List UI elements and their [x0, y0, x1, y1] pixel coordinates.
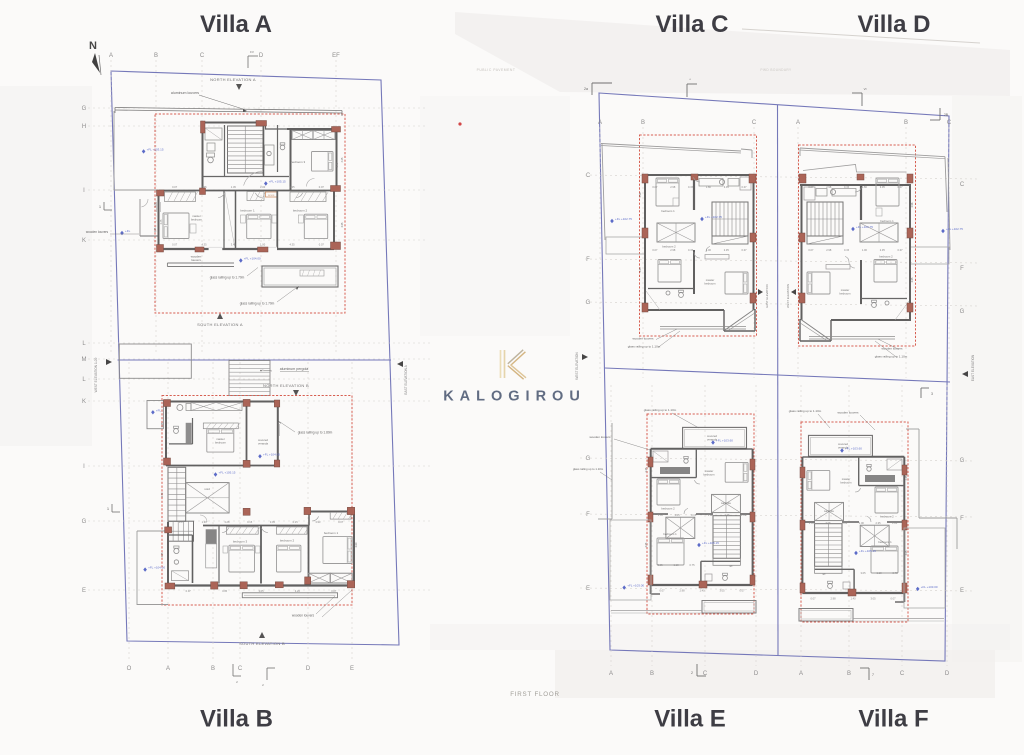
svg-text:4.25: 4.25 [341, 157, 344, 162]
svg-text:2.35: 2.35 [161, 422, 164, 427]
svg-text:3.05: 3.05 [341, 222, 344, 227]
svg-text:3.05: 3.05 [645, 542, 648, 547]
svg-text:2.98: 2.98 [639, 192, 642, 197]
svg-text:3.05: 3.05 [154, 227, 157, 232]
svg-text:2.35: 2.35 [645, 467, 648, 472]
svg-text:3.05: 3.05 [639, 267, 642, 272]
svg-text:3.05: 3.05 [905, 550, 908, 555]
svg-text:2.35: 2.35 [905, 475, 908, 480]
svg-text:3.05: 3.05 [161, 552, 164, 557]
svg-text:3.05: 3.05 [911, 277, 914, 282]
svg-text:3.60: 3.60 [355, 542, 358, 547]
svg-text:2.98: 2.98 [911, 202, 914, 207]
svg-text:3.70: 3.70 [161, 492, 164, 497]
svg-text:1.40: 1.40 [154, 202, 157, 207]
